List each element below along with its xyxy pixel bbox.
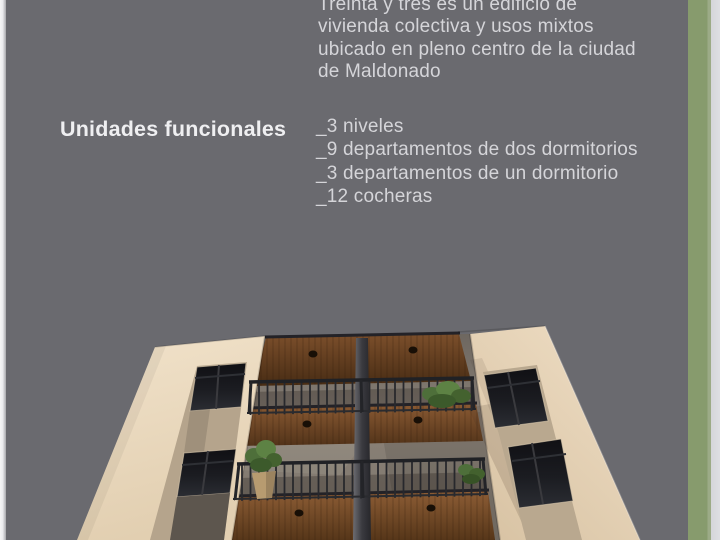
building-center-recess: [232, 334, 500, 540]
intro-line: vivienda colectiva y usos mixtos: [318, 16, 698, 38]
intro-line: de Maldonado: [318, 61, 698, 83]
plant-upper-right: [422, 381, 471, 408]
intro-paragraph: Treinta y tres es un edificio de viviend…: [318, 0, 698, 84]
unit-list-item: _3 departamentos de un dormitorio: [316, 162, 638, 185]
unit-list-item: _12 cocheras: [316, 185, 638, 208]
building-left-wall: [77, 336, 265, 540]
unit-list-item: _9 departamentos de dos dormitorios: [316, 138, 638, 161]
unit-list-item: _3 niveles: [316, 115, 638, 138]
building-right-wall: [458, 326, 640, 540]
intro-line: ubicado en pleno centro de la ciudad: [318, 39, 698, 61]
unit-list: _3 niveles _9 departamentos de dos dormi…: [316, 115, 638, 209]
balcony-railings: [233, 377, 488, 501]
balcony-plants: [245, 381, 485, 499]
plant-lower-right: [458, 464, 485, 484]
left-page-edge: [0, 0, 6, 540]
presentation-slide: Treinta y tres es un edificio de viviend…: [0, 0, 720, 540]
left-window-upper: [190, 363, 246, 411]
left-window-lower: [177, 449, 236, 497]
central-column: [353, 338, 371, 540]
section-heading: Unidades funcionales: [60, 117, 286, 142]
intro-line: Treinta y tres es un edificio de: [318, 0, 698, 16]
right-page-edge: [711, 0, 720, 540]
right-window-lower: [508, 439, 573, 508]
balcony-wood-soffits: [227, 333, 495, 540]
plant-lower-left: [245, 440, 282, 499]
right-window-upper: [484, 368, 548, 428]
